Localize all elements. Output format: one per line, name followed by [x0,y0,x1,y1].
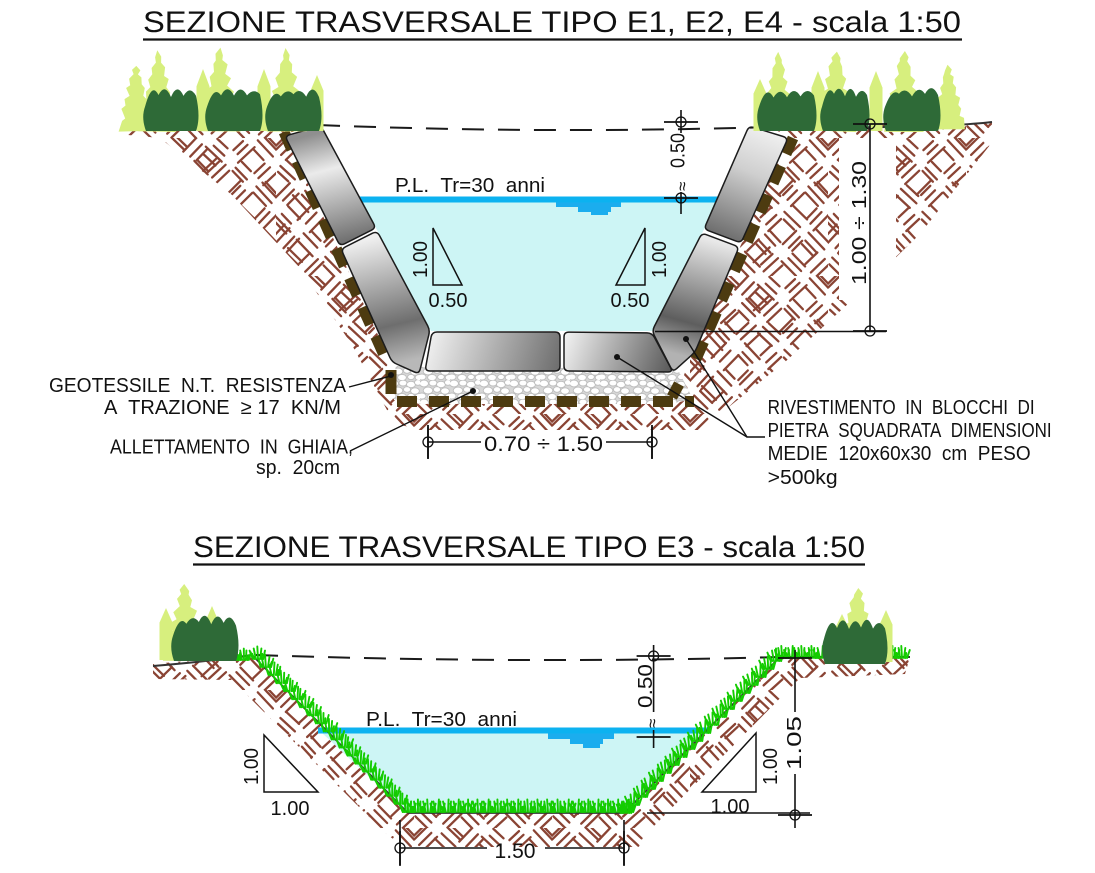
svg-text:>500kg: >500kg [768,467,838,489]
svg-text:PIETRA SQUADRATA DIMENSIONI: PIETRA SQUADRATA DIMENSIONI [768,420,1052,442]
svg-text:1.00: 1.00 [760,748,782,785]
svg-text:0.70 ÷ 1.50: 0.70 ÷ 1.50 [484,433,603,456]
svg-text:1.05: 1.05 [784,716,806,770]
svg-text:A TRAZIONE ≥ 17 KN/M: A TRAZIONE ≥ 17 KN/M [104,397,341,419]
svg-text:P.L. Tr=30 anni: P.L. Tr=30 anni [395,175,545,197]
svg-text:1.00: 1.00 [711,796,750,818]
svg-text:SEZIONE TRASVERSALE TIPO E1, E: SEZIONE TRASVERSALE TIPO E1, E2, E4 - sc… [143,6,961,39]
svg-text:GEOTESSILE N.T. RESISTENZA: GEOTESSILE N.T. RESISTENZA [49,375,347,397]
svg-text:RIVESTIMENTO IN BLOCCHI DI: RIVESTIMENTO IN BLOCCHI DI [768,397,1035,419]
svg-text:1.00: 1.00 [241,748,263,785]
svg-text:1.00: 1.00 [410,241,432,278]
svg-text:1.50: 1.50 [495,840,536,863]
svg-text:sp. 20cm: sp. 20cm [256,457,340,479]
svg-text:0.50: 0.50 [635,664,657,708]
svg-text:1.00 ÷ 1.30: 1.00 ÷ 1.30 [849,161,871,285]
svg-text:ALLETTAMENTO IN GHIAIA,: ALLETTAMENTO IN GHIAIA, [110,437,353,459]
svg-text:1.00: 1.00 [649,241,671,278]
svg-text:≈: ≈ [673,182,692,191]
svg-text:1.00: 1.00 [271,798,310,820]
svg-text:MEDIE 120x60x30 cm PESO: MEDIE 120x60x30 cm PESO [768,443,1031,465]
svg-text:P.L. Tr=30 anni: P.L. Tr=30 anni [366,709,517,731]
svg-text:0.50: 0.50 [429,290,468,312]
svg-text:0.50: 0.50 [668,133,690,168]
svg-text:SEZIONE TRASVERSALE TIPO E3 -: SEZIONE TRASVERSALE TIPO E3 - scala 1:50 [193,531,865,564]
svg-text:0.50: 0.50 [611,290,650,312]
svg-text:≈: ≈ [643,719,662,728]
